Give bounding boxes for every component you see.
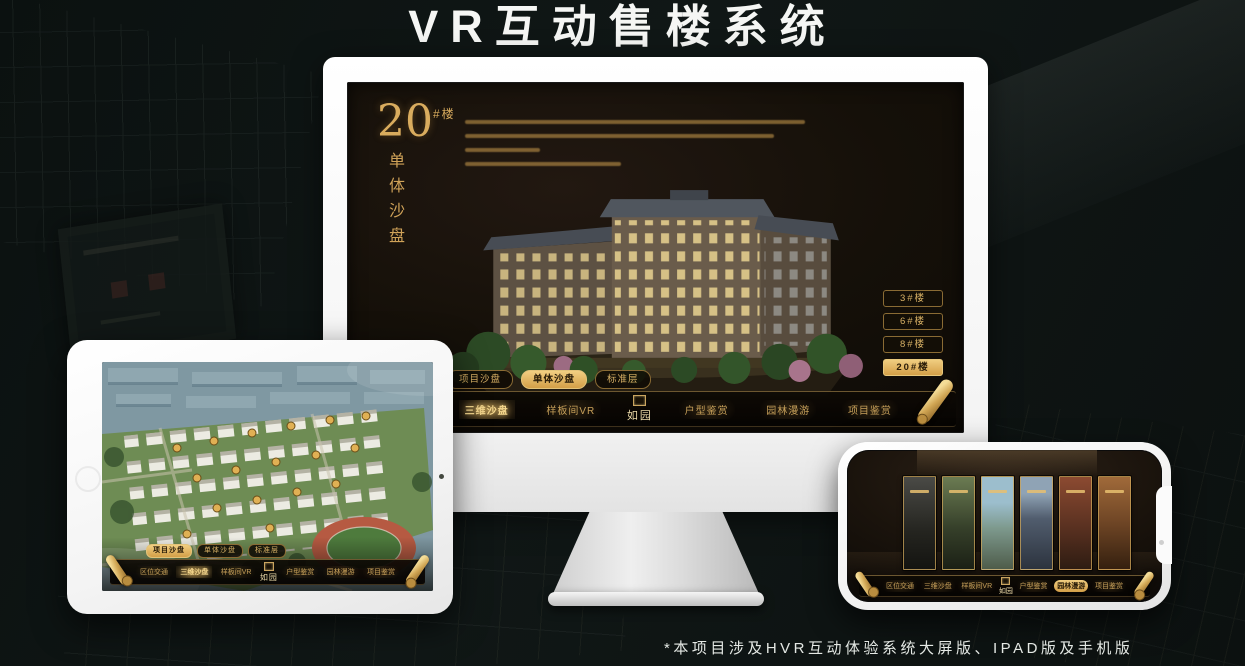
floor-selector: 3#楼 6#楼 8#楼 20#楼 bbox=[883, 287, 943, 379]
tablet-device: 项目沙盘 单体沙盘 标准层 区位交通 三维沙盘 样板间VR 如园 户型鉴赏 园林… bbox=[67, 340, 453, 614]
nav-item-model-room-vr[interactable]: 样板间VR bbox=[958, 580, 995, 592]
logo-emblem-icon bbox=[1001, 577, 1010, 585]
phone-screen: 区位交通 三维沙盘 样板间VR 如园 户型鉴赏 园林漫游 项目鉴赏 bbox=[847, 450, 1162, 602]
gallery-panel[interactable] bbox=[981, 476, 1014, 570]
subtab-single-sandbox[interactable]: 单体沙盘 bbox=[521, 370, 587, 389]
plaque-seal-decor bbox=[111, 280, 128, 298]
nav-item-3d-sandbox[interactable]: 三维沙盘 bbox=[459, 400, 515, 419]
nav-item-project-gallery[interactable]: 项目鉴赏 bbox=[842, 400, 898, 419]
building-3d-viewport[interactable] bbox=[433, 156, 875, 404]
subtab-standard-floor[interactable]: 标准层 bbox=[248, 544, 286, 558]
scroll-page-flip-icon[interactable] bbox=[854, 570, 876, 598]
phone-notch bbox=[1156, 486, 1172, 564]
plaque-seal-decor bbox=[148, 272, 165, 290]
app-logo: 如园 bbox=[999, 577, 1013, 596]
logo-text: 如园 bbox=[260, 572, 278, 583]
footnote-text: *本项目涉及HVR互动体验系统大屏版、IPAD版及手机版 bbox=[664, 637, 1133, 658]
tablet-camera-icon bbox=[439, 474, 444, 479]
tablet-bottom-navbar: 区位交通 三维沙盘 样板间VR 如园 户型鉴赏 园林漫游 项目鉴赏 bbox=[110, 559, 425, 585]
nav-item-3d-sandbox[interactable]: 三维沙盘 bbox=[176, 566, 212, 578]
nav-item-garden-tour[interactable]: 园林漫游 bbox=[1054, 580, 1088, 592]
tablet-home-button[interactable] bbox=[75, 466, 101, 492]
gallery-panel[interactable] bbox=[1098, 476, 1131, 570]
sandbox-subtabs: 项目沙盘 单体沙盘 标准层 bbox=[447, 370, 651, 389]
floor-button-8[interactable]: 8#楼 bbox=[883, 336, 943, 353]
logo-emblem-icon bbox=[264, 562, 274, 571]
panel-caption-decor bbox=[949, 490, 968, 493]
logo-emblem-icon bbox=[633, 395, 646, 406]
monitor-base bbox=[548, 592, 764, 606]
poster-stage: VR互动售楼系统 20#楼 单体沙盘 bbox=[0, 0, 1245, 666]
app-logo: 如园 bbox=[260, 562, 278, 583]
intro-text-line bbox=[465, 120, 805, 124]
gallery-panel[interactable] bbox=[903, 476, 936, 570]
nav-item-model-room-vr[interactable]: 样板间VR bbox=[540, 400, 601, 419]
gallery-panel[interactable] bbox=[1020, 476, 1053, 570]
nav-item-floorplan-gallery[interactable]: 户型鉴赏 bbox=[679, 400, 735, 419]
nav-item-location-traffic[interactable]: 区位交通 bbox=[136, 566, 172, 578]
heading-vertical-subtitle: 单体沙盘 bbox=[383, 152, 407, 274]
scroll-page-flip-icon[interactable] bbox=[916, 377, 956, 425]
logo-text: 如园 bbox=[627, 407, 653, 423]
subtab-project-sandbox[interactable]: 项目沙盘 bbox=[146, 544, 192, 558]
nav-item-project-gallery[interactable]: 项目鉴赏 bbox=[363, 566, 399, 578]
building-left-wing bbox=[483, 226, 624, 358]
subtab-single-sandbox[interactable]: 单体沙盘 bbox=[197, 544, 243, 558]
subtab-standard-floor[interactable]: 标准层 bbox=[595, 370, 651, 389]
interior-backdrop-decor bbox=[917, 450, 1097, 476]
plaque-text-decor bbox=[101, 311, 161, 324]
phone-device: 区位交通 三维沙盘 样板间VR 如园 户型鉴赏 园林漫游 项目鉴赏 bbox=[838, 442, 1171, 610]
panel-caption-decor bbox=[988, 490, 1007, 493]
nav-item-project-gallery[interactable]: 项目鉴赏 bbox=[1092, 580, 1126, 592]
nav-item-location-traffic[interactable]: 区位交通 bbox=[883, 580, 917, 592]
subtab-project-sandbox[interactable]: 项目沙盘 bbox=[447, 370, 513, 389]
plaque-text-decor bbox=[83, 236, 178, 256]
building-main-block bbox=[600, 190, 775, 358]
nav-item-garden-tour[interactable]: 园林漫游 bbox=[323, 566, 359, 578]
panel-caption-decor bbox=[910, 490, 929, 493]
page-title: VR互动售楼系统 bbox=[0, 0, 1245, 56]
scroll-page-flip-icon[interactable] bbox=[1133, 570, 1155, 598]
monitor-stand bbox=[552, 512, 760, 596]
floor-button-6[interactable]: 6#楼 bbox=[883, 313, 943, 330]
gallery-panels bbox=[903, 476, 1131, 570]
phone-camera-icon bbox=[1159, 540, 1164, 545]
nav-item-garden-tour[interactable]: 园林漫游 bbox=[760, 400, 816, 419]
logo-text: 如园 bbox=[999, 586, 1013, 596]
panel-caption-decor bbox=[1066, 490, 1085, 493]
intro-text-line bbox=[465, 134, 774, 138]
floor-button-3[interactable]: 3#楼 bbox=[883, 290, 943, 307]
floor-button-20[interactable]: 20#楼 bbox=[883, 359, 943, 376]
panel-caption-decor bbox=[1105, 490, 1124, 493]
heading-suffix: #楼 bbox=[433, 107, 456, 121]
gallery-panel[interactable] bbox=[942, 476, 975, 570]
app-logo: 如园 bbox=[627, 395, 653, 423]
intro-text-line bbox=[465, 148, 540, 152]
tablet-screen: 项目沙盘 单体沙盘 标准层 区位交通 三维沙盘 样板间VR 如园 户型鉴赏 园林… bbox=[102, 362, 433, 591]
heading-number: 20 bbox=[377, 96, 433, 147]
nav-item-model-room-vr[interactable]: 样板间VR bbox=[217, 566, 256, 578]
panel-caption-decor bbox=[1027, 490, 1046, 493]
nav-item-3d-sandbox[interactable]: 三维沙盘 bbox=[921, 580, 955, 592]
phone-bottom-navbar: 区位交通 三维沙盘 样板间VR 如园 户型鉴赏 园林漫游 项目鉴赏 bbox=[859, 575, 1150, 597]
nav-item-floorplan-gallery[interactable]: 户型鉴赏 bbox=[282, 566, 318, 578]
tablet-subtabs: 项目沙盘 单体沙盘 标准层 bbox=[146, 544, 286, 558]
gallery-panel[interactable] bbox=[1059, 476, 1092, 570]
nav-item-floorplan-gallery[interactable]: 户型鉴赏 bbox=[1017, 580, 1051, 592]
